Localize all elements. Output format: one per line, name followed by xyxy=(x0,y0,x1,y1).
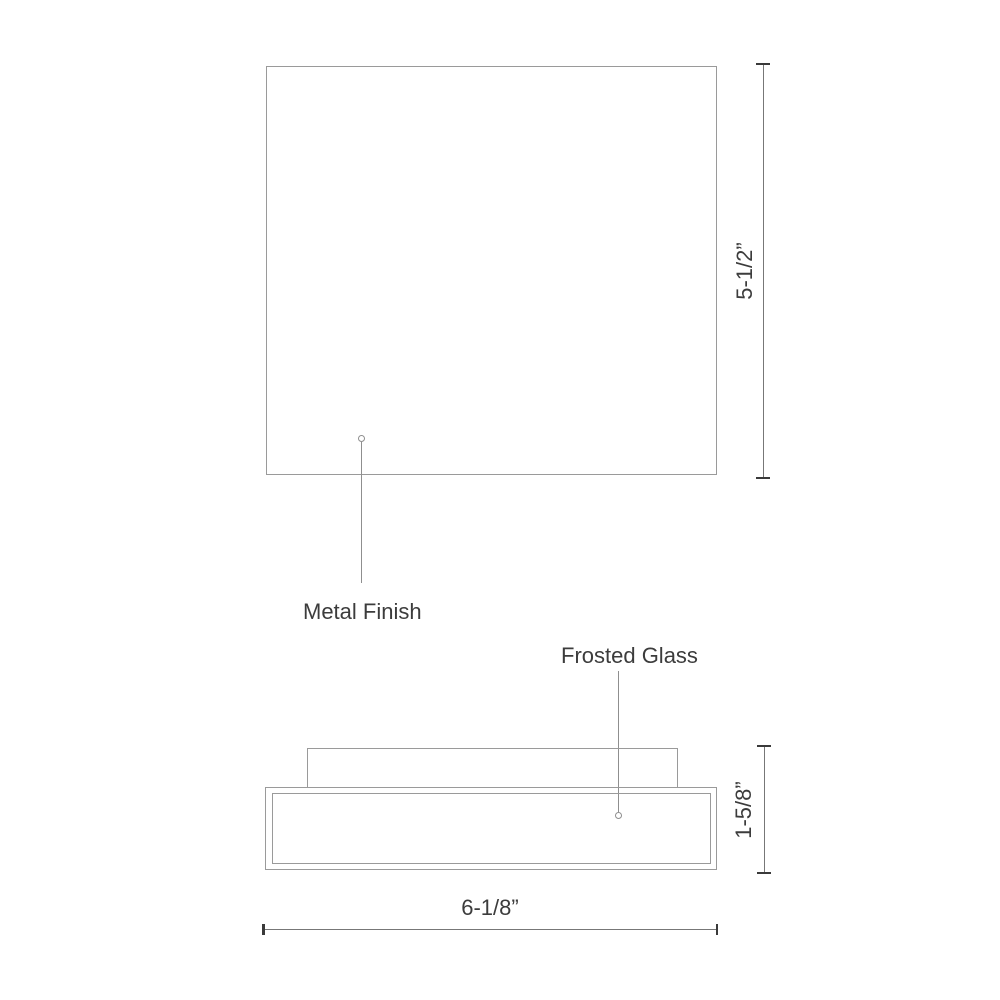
dimension-diagram: 5-1/2” Metal Finish Frosted Glass 1-5/8”… xyxy=(0,0,1000,1000)
depth-dimension-line xyxy=(764,746,765,873)
metal-finish-label: Metal Finish xyxy=(303,599,422,625)
depth-dimension-label: 1-5/8” xyxy=(731,760,757,860)
top-view-outline xyxy=(266,66,717,475)
dimension-tick xyxy=(716,924,719,935)
frosted-glass-panel-outline xyxy=(272,793,711,864)
callout-point xyxy=(358,435,365,442)
height-dimension-label: 5-1/2” xyxy=(732,221,758,321)
height-dimension-line xyxy=(763,64,764,478)
width-dimension-line xyxy=(263,929,717,930)
mounting-plate-outline xyxy=(307,748,678,788)
dimension-tick xyxy=(757,745,771,748)
frosted-glass-label: Frosted Glass xyxy=(561,643,698,669)
dimension-tick xyxy=(262,924,265,935)
callout-leader-line xyxy=(361,442,362,583)
dimension-tick xyxy=(756,63,770,66)
dimension-tick xyxy=(757,872,771,875)
width-dimension-label: 6-1/8” xyxy=(263,895,717,921)
dimension-tick xyxy=(756,477,770,480)
